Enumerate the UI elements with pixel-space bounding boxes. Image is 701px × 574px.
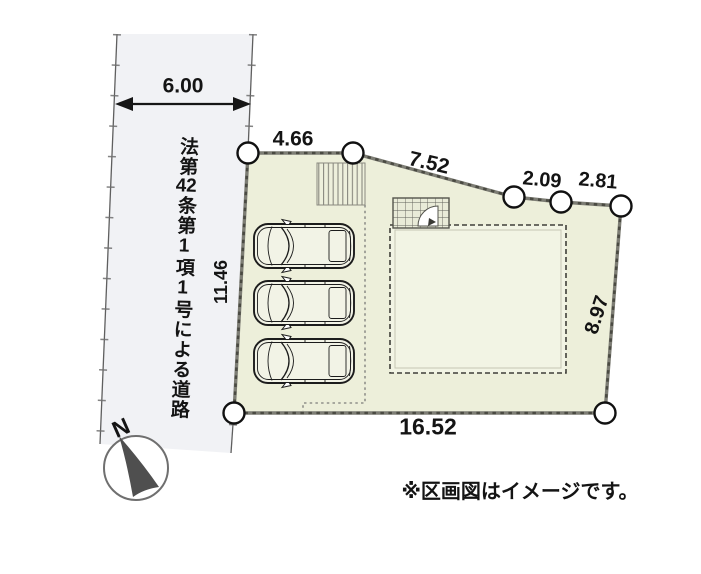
entrance-steps [317, 163, 365, 205]
vertex-marker [595, 403, 616, 424]
car-icon [254, 220, 354, 273]
dimension-east-upper-1: 2.09 [522, 168, 563, 191]
footnote-text: ※区画図はイメージです。 [401, 482, 638, 502]
dimension-top: 4.66 [273, 129, 314, 150]
dimension-road-width: 6.00 [163, 76, 204, 97]
dimension-left: 11.46 [212, 260, 230, 304]
car-icon [254, 335, 354, 388]
building-footprint [390, 225, 566, 373]
car-icon [254, 277, 354, 330]
dimension-east-upper-2: 2.81 [578, 169, 619, 192]
vertex-marker [504, 187, 525, 208]
dimension-bottom: 16.52 [399, 416, 457, 439]
vertex-marker [551, 192, 572, 213]
compass-north-icon [104, 436, 168, 500]
vertex-marker [343, 143, 364, 164]
vertex-marker [224, 403, 245, 424]
lot-plan-diagram: 6.00 法第42条第1項1号による道路 4.66 7.52 2.09 2.81… [0, 0, 701, 574]
vertex-marker [238, 143, 259, 164]
vertex-marker [611, 196, 632, 217]
